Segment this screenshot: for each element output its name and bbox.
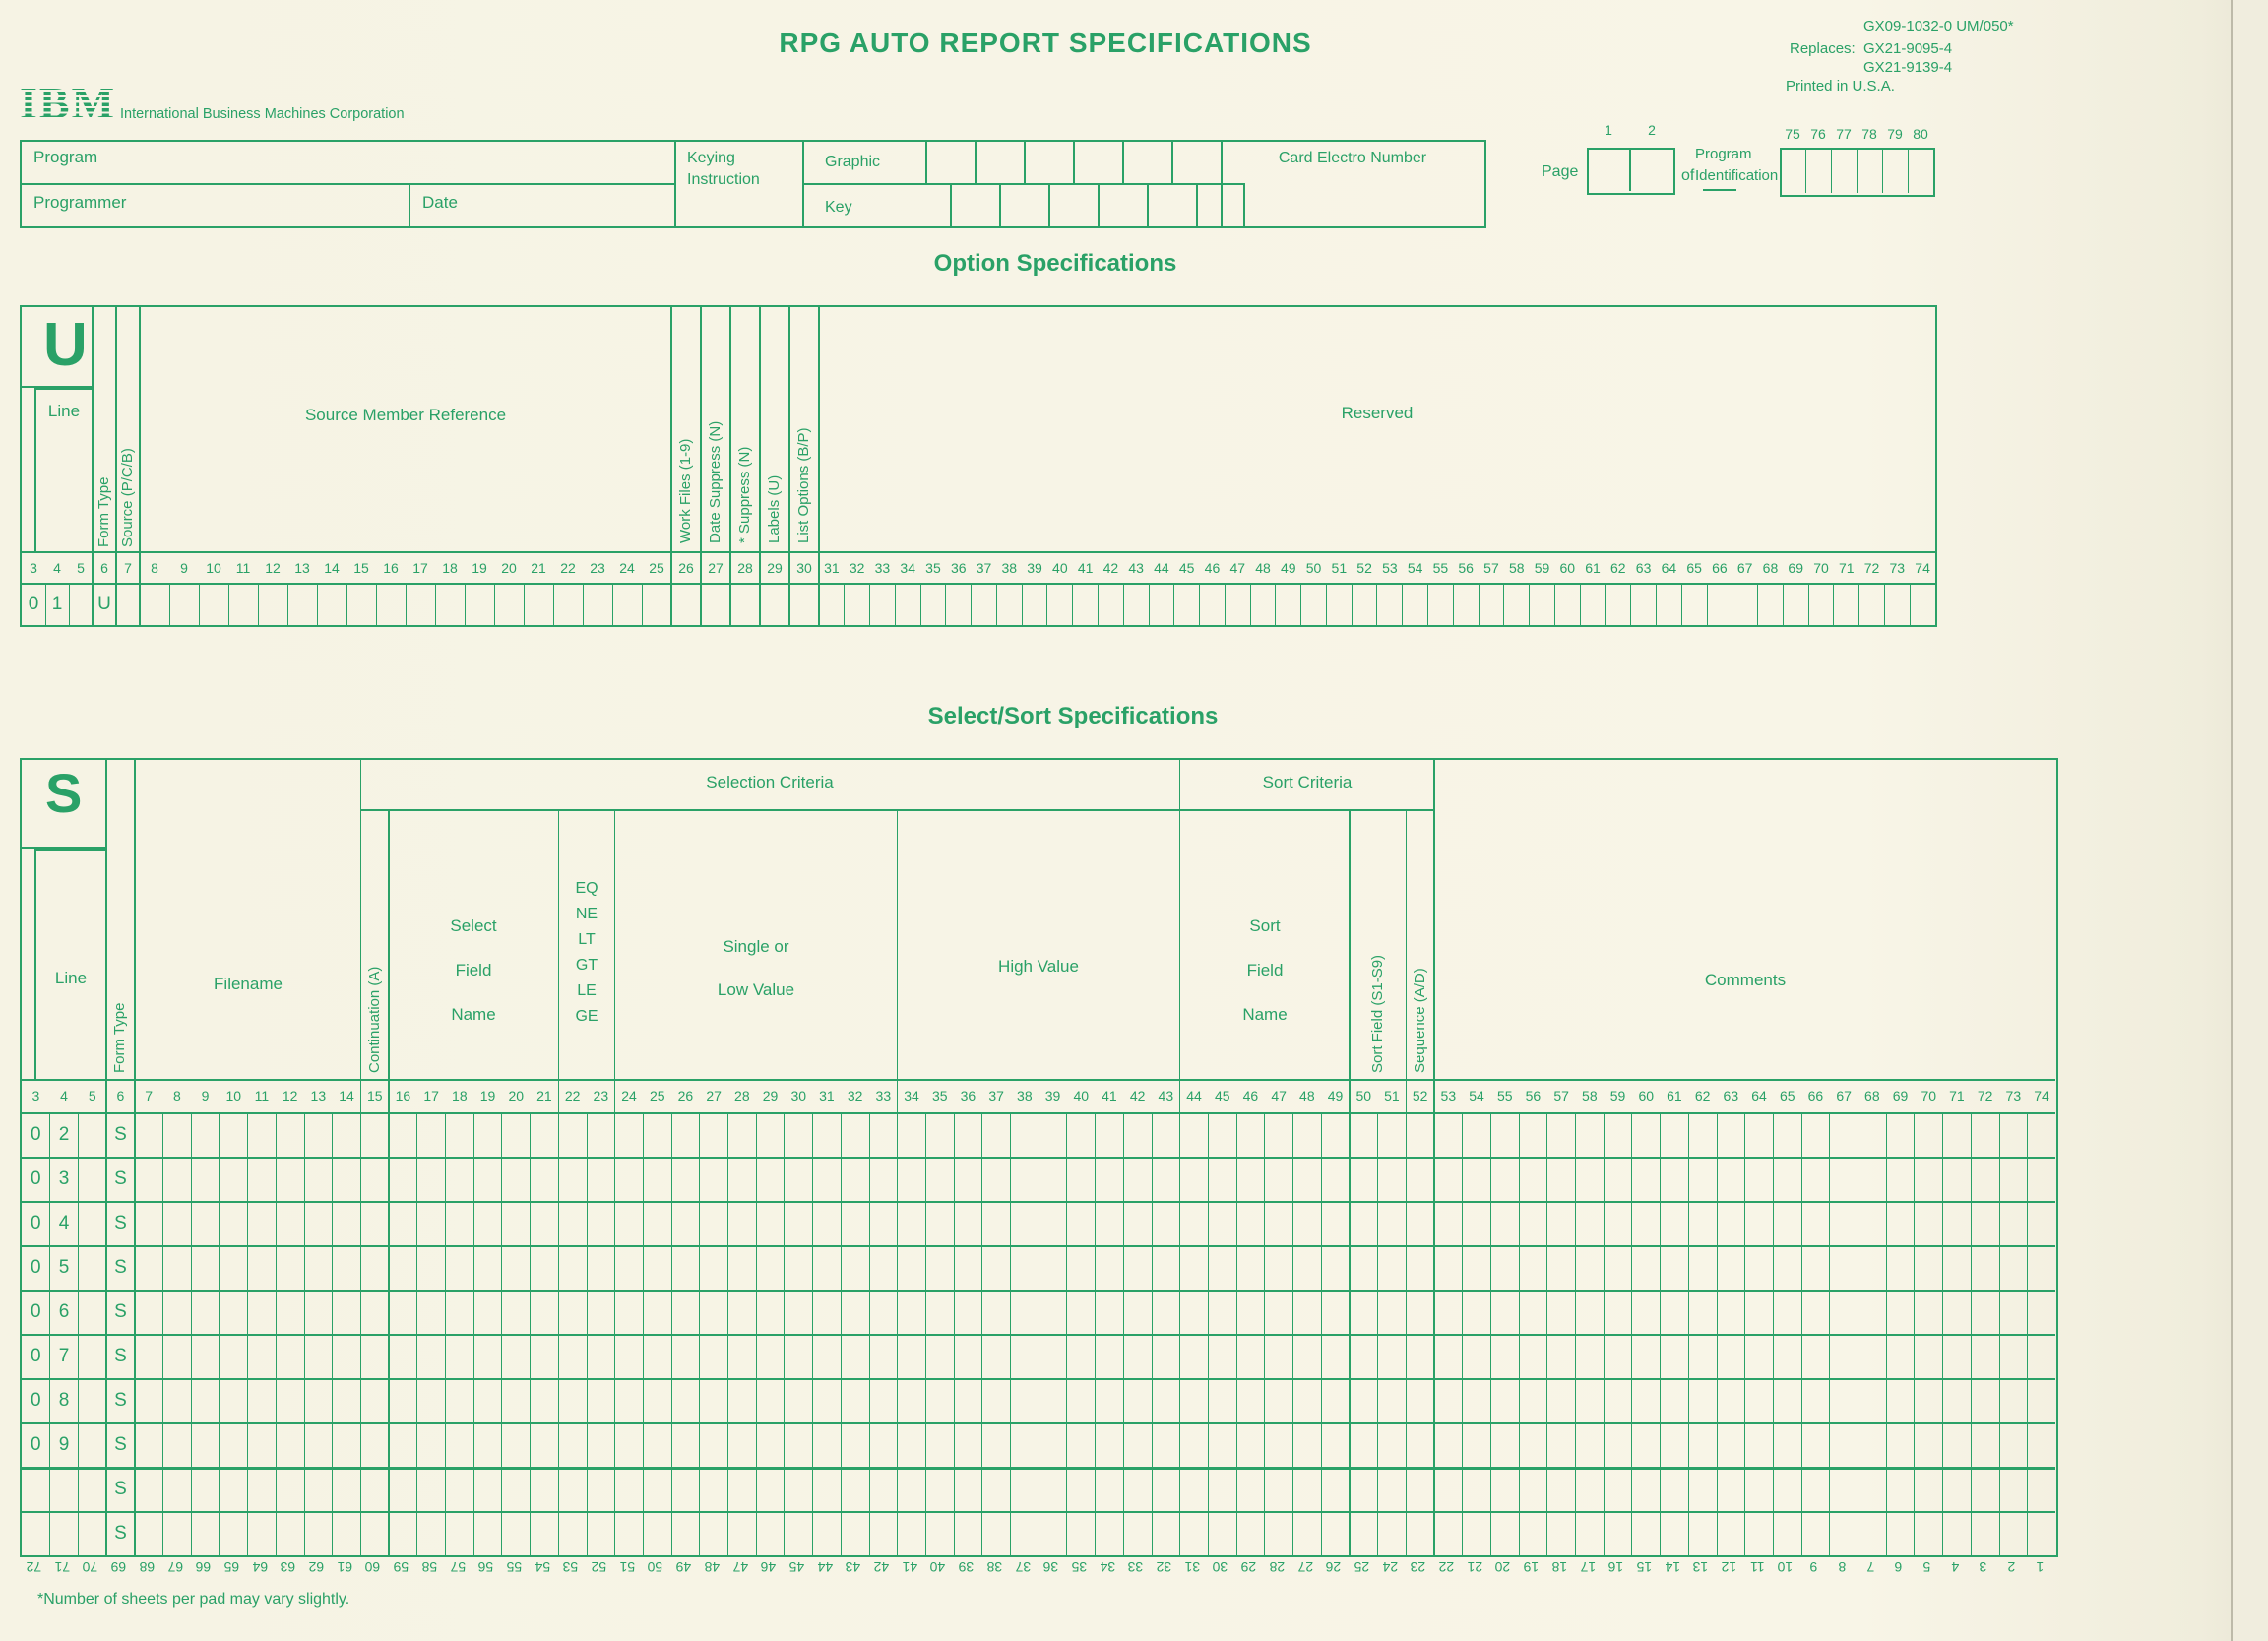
column-number: 27 — [700, 1088, 728, 1104]
column-number: 66 — [1707, 560, 1732, 576]
grid-line — [643, 1201, 644, 1245]
grid-line — [1519, 1378, 1520, 1422]
grid-line — [1744, 1511, 1745, 1555]
grid-line — [276, 1422, 277, 1467]
grid-line — [191, 1511, 192, 1555]
grid-line — [191, 1245, 192, 1290]
grid-line — [1631, 1511, 1632, 1555]
cell-value: S — [106, 1301, 135, 1323]
grid-line — [812, 1112, 813, 1157]
program-id-line-1: Program — [1695, 144, 1778, 165]
grid-line — [614, 1422, 616, 1467]
grid-line — [219, 1422, 220, 1467]
reversed-column-number: 45 — [783, 1559, 811, 1575]
grid-line — [1427, 583, 1428, 625]
grid-line — [1744, 1378, 1745, 1422]
grid-line — [2027, 1511, 2028, 1555]
grid-line — [332, 1157, 333, 1201]
grid-line — [954, 1378, 955, 1422]
column-number: 30 — [789, 560, 819, 576]
grid-line — [530, 1422, 531, 1467]
grid-line — [530, 1201, 531, 1245]
sort-field-line-2: Field — [1242, 948, 1287, 992]
column-number: 51 — [1378, 1088, 1407, 1104]
grid-line — [1039, 1334, 1039, 1378]
grid-line — [1858, 1245, 1858, 1290]
grid-line — [788, 307, 790, 551]
keying-instruction-label: Keying Instruction — [687, 148, 760, 191]
column-number: 52 — [1352, 560, 1377, 576]
reversed-column-number: 4 — [1941, 1559, 1970, 1575]
grid-line — [788, 551, 790, 583]
grid-line — [416, 1112, 417, 1157]
grid-line — [191, 1378, 192, 1422]
reversed-column-number: 8 — [1828, 1559, 1857, 1575]
grid-line — [558, 1201, 560, 1245]
relation-gt: GT — [575, 953, 598, 978]
grid-line — [162, 1334, 163, 1378]
grid-line — [812, 1467, 813, 1511]
grid-line — [981, 1334, 982, 1378]
cell-value: 8 — [50, 1390, 79, 1412]
column-number: 46 — [1200, 560, 1226, 576]
grid-line — [1914, 1334, 1915, 1378]
grid-line — [304, 1201, 305, 1245]
grid-line — [670, 307, 672, 551]
grid-line — [530, 1245, 531, 1290]
grid-line — [587, 1157, 588, 1201]
reversed-column-number: 61 — [331, 1559, 359, 1575]
grid-line — [1829, 1467, 1830, 1511]
grid-line — [670, 583, 672, 625]
grid-line — [1604, 1290, 1605, 1334]
grid-line — [1321, 1112, 1322, 1157]
grid-line — [346, 583, 347, 625]
grid-line — [1292, 1112, 1293, 1157]
grid-line — [1300, 583, 1301, 625]
grid-line — [897, 1157, 899, 1201]
relation-lt: LT — [575, 927, 598, 953]
grid-line — [2027, 1245, 2028, 1290]
grid-line — [162, 1112, 163, 1157]
column-number: 21 — [524, 560, 553, 576]
option-source-vlabel: Source (P/C/B) — [120, 448, 136, 547]
grid-line — [1406, 1157, 1408, 1201]
divider-line — [1221, 140, 1223, 226]
column-number: 35 — [920, 560, 946, 576]
divider-line — [1147, 184, 1149, 226]
grid-line — [1717, 1157, 1718, 1201]
grid-line — [360, 1290, 362, 1334]
grid-line — [1321, 1422, 1322, 1467]
reversed-column-number: 58 — [415, 1559, 444, 1575]
grid-line — [614, 1201, 616, 1245]
grid-line — [49, 1467, 50, 1511]
high-value-label: High Value — [998, 957, 1079, 977]
grid-line — [1604, 1378, 1605, 1422]
grid-line — [1688, 1334, 1689, 1378]
grid-line — [1829, 1511, 1830, 1555]
grid-line — [388, 1422, 390, 1467]
grid-line — [727, 1467, 728, 1511]
printed-in-usa: Printed in U.S.A. — [1786, 78, 1895, 95]
column-number: 43 — [1152, 1088, 1180, 1104]
grid-line — [1688, 1112, 1689, 1157]
grid-line — [1829, 1334, 1830, 1378]
grid-line — [1910, 583, 1911, 625]
grid-line — [1546, 1511, 1547, 1555]
column-number: 3 — [22, 560, 45, 576]
column-number: 59 — [1530, 560, 1555, 576]
grid-line — [1546, 1378, 1547, 1422]
grid-line — [219, 1334, 220, 1378]
grid-line — [416, 1422, 417, 1467]
grid-line — [954, 1201, 955, 1245]
grid-line — [1010, 1290, 1011, 1334]
grid-line — [1942, 1245, 1943, 1290]
grid-line — [981, 1201, 982, 1245]
grid-line — [1744, 1290, 1745, 1334]
grid-line — [756, 1245, 757, 1290]
grid-line — [841, 1467, 842, 1511]
grid-line — [388, 1334, 390, 1378]
grid-line — [1179, 760, 1181, 1079]
grid-line — [1123, 1467, 1124, 1511]
grid-line — [1406, 1290, 1408, 1334]
grid-line — [1744, 1157, 1745, 1201]
grid-line — [1914, 1245, 1915, 1290]
grid-line — [1717, 1334, 1718, 1378]
grid-line — [643, 1467, 644, 1511]
grid-line — [1039, 1422, 1039, 1467]
grid-line — [1095, 1334, 1096, 1378]
grid-line — [78, 1511, 79, 1555]
grid-line — [1010, 1422, 1011, 1467]
reversed-column-number: 33 — [1121, 1559, 1150, 1575]
grid-line — [784, 1511, 785, 1555]
column-number: 15 — [346, 560, 376, 576]
grid-line — [1095, 1245, 1096, 1290]
column-number: 73 — [1884, 560, 1910, 576]
grid-line — [784, 1112, 785, 1157]
grid-line — [416, 1511, 417, 1555]
column-number: 56 — [1519, 1088, 1547, 1104]
grid-line — [1631, 1290, 1632, 1334]
grid-line — [1264, 1201, 1265, 1245]
grid-line — [1688, 1511, 1689, 1555]
grid-line — [1066, 1511, 1067, 1555]
cell-value: U — [93, 594, 116, 615]
grid-line — [1688, 1378, 1689, 1422]
grid-line — [1406, 1079, 1408, 1112]
reversed-column-number: 22 — [1432, 1559, 1461, 1575]
grid-line — [1208, 1201, 1209, 1245]
grid-line — [1462, 1201, 1463, 1245]
grid-line — [332, 1467, 333, 1511]
grid-line — [1717, 1290, 1718, 1334]
reversed-column-number: 3 — [1969, 1559, 1997, 1575]
grid-line — [895, 583, 896, 625]
grid-line — [841, 1157, 842, 1201]
grid-line — [1660, 1290, 1661, 1334]
grid-line — [784, 1245, 785, 1290]
grid-line — [869, 1422, 870, 1467]
column-number: 49 — [1276, 560, 1301, 576]
column-number: 3 — [22, 1088, 50, 1104]
grid-line — [360, 1112, 362, 1157]
column-number: 34 — [895, 560, 920, 576]
column-number: 17 — [417, 1088, 446, 1104]
grid-line — [1236, 1157, 1237, 1201]
grid-line — [1833, 583, 1834, 625]
column-number: 44 — [1149, 560, 1174, 576]
grid-line — [445, 1467, 446, 1511]
grid-line — [1149, 583, 1150, 625]
divider-line — [1073, 140, 1075, 184]
grid-line — [1605, 583, 1606, 625]
grid-line — [1773, 1290, 1774, 1334]
grid-line — [1376, 583, 1377, 625]
grid-line — [1264, 1422, 1265, 1467]
grid-line — [1604, 1245, 1605, 1290]
grid-line — [1971, 1467, 1972, 1511]
column-number: 41 — [1096, 1088, 1124, 1104]
grid-line — [1010, 1378, 1011, 1422]
grid-line — [587, 1334, 588, 1378]
cell-value: S — [106, 1523, 135, 1545]
grid-line — [897, 1511, 899, 1555]
grid-line — [612, 583, 613, 625]
column-number: 54 — [1403, 560, 1428, 576]
reversed-column-number: 37 — [1009, 1559, 1038, 1575]
grid-line — [1152, 1467, 1153, 1511]
grid-line — [1010, 1511, 1011, 1555]
column-number: 57 — [1547, 1088, 1576, 1104]
grid-line — [530, 1157, 531, 1201]
grid-line — [1208, 1290, 1209, 1334]
grid-line — [360, 1467, 362, 1511]
grid-line — [1886, 1290, 1887, 1334]
grid-line — [2027, 1112, 2028, 1157]
grid-line — [1208, 1245, 1209, 1290]
grid-line — [841, 1422, 842, 1467]
grid-line — [784, 1467, 785, 1511]
grid-line — [1604, 1467, 1605, 1511]
grid-line — [1292, 1378, 1293, 1422]
grid-line — [501, 1290, 502, 1334]
grid-line — [925, 1245, 926, 1290]
grid-line — [727, 1511, 728, 1555]
grid-line — [1999, 1201, 2000, 1245]
grid-line — [22, 551, 1935, 553]
grid-line — [1321, 1201, 1322, 1245]
grid-line — [1942, 1112, 1943, 1157]
column-number: 47 — [1265, 1088, 1293, 1104]
column-number: 12 — [258, 560, 287, 576]
column-number: 9 — [169, 560, 199, 576]
grid-line — [34, 388, 93, 390]
relation-ge: GE — [575, 1004, 598, 1030]
grid-line — [1688, 1157, 1689, 1201]
cell-value: 2 — [50, 1124, 79, 1146]
option-form-type-letter: U — [43, 315, 88, 376]
column-number: 30 — [785, 1088, 813, 1104]
grid-line — [219, 1511, 220, 1555]
grid-line — [1462, 1290, 1463, 1334]
grid-line — [1688, 1290, 1689, 1334]
grid-line — [1039, 1112, 1039, 1157]
column-number: 16 — [389, 1088, 417, 1104]
grid-line — [1829, 1112, 1830, 1157]
grid-line — [1858, 1467, 1858, 1511]
grid-line — [1942, 1290, 1943, 1334]
grid-line — [1179, 1245, 1181, 1290]
grid-line — [1519, 1201, 1520, 1245]
grid-line — [1179, 1157, 1181, 1201]
reversed-column-number: 13 — [1686, 1559, 1715, 1575]
reversed-column-number: 15 — [1630, 1559, 1659, 1575]
select-field-name-label: Select Field Name — [450, 904, 496, 1037]
grid-line — [501, 1157, 502, 1201]
grid-line — [1264, 1378, 1265, 1422]
column-number: 35 — [925, 1088, 954, 1104]
grid-line — [818, 307, 820, 551]
grid-line — [1631, 1378, 1632, 1422]
grid-line — [1490, 1467, 1491, 1511]
grid-line — [1630, 583, 1631, 625]
cell-value: S — [106, 1124, 135, 1146]
grid-line — [1519, 1422, 1520, 1467]
column-number: 53 — [1434, 1088, 1463, 1104]
grid-line — [727, 1201, 728, 1245]
grid-line — [1462, 1334, 1463, 1378]
grid-line — [332, 1378, 333, 1422]
column-number: 45 — [1208, 1088, 1236, 1104]
grid-line — [1264, 1245, 1265, 1290]
reversed-column-number: 50 — [641, 1559, 669, 1575]
grid-line — [1829, 1201, 1830, 1245]
grid-line — [247, 1422, 248, 1467]
grid-line — [1546, 1157, 1547, 1201]
grid-line — [1264, 1112, 1265, 1157]
grid-line — [1208, 1334, 1209, 1378]
grid-line — [501, 1422, 502, 1467]
grid-line — [784, 1201, 785, 1245]
grid-line — [1490, 1334, 1491, 1378]
grid-line — [1039, 1467, 1039, 1511]
cell-value: 4 — [50, 1213, 79, 1234]
grid-line — [1321, 1511, 1322, 1555]
reversed-column-number: 56 — [472, 1559, 500, 1575]
column-number: 47 — [1225, 560, 1250, 576]
grid-line — [1462, 1245, 1463, 1290]
grid-line — [1321, 1157, 1322, 1201]
cell-value: 9 — [50, 1434, 79, 1456]
column-number: 6 — [106, 1088, 135, 1104]
grid-line — [191, 1157, 192, 1201]
column-number: 25 — [642, 560, 671, 576]
grid-line — [920, 583, 921, 625]
grid-line — [1971, 1157, 1972, 1201]
grid-line — [1039, 1245, 1039, 1290]
grid-line — [1942, 1334, 1943, 1378]
grid-line — [784, 1334, 785, 1378]
grid-line — [1914, 1290, 1915, 1334]
column-number: 46 — [1236, 1088, 1265, 1104]
grid-line — [1152, 1334, 1153, 1378]
cell-value: 0 — [22, 594, 45, 615]
grid-line — [1829, 1378, 1830, 1422]
relation-ne: NE — [575, 902, 598, 927]
grid-line — [1717, 1511, 1718, 1555]
grid-line — [756, 1334, 757, 1378]
grid-line — [643, 1290, 644, 1334]
column-number: 23 — [583, 560, 612, 576]
grid-line — [869, 1112, 870, 1157]
column-number: 6 — [93, 560, 116, 576]
divider-line — [950, 184, 952, 226]
grid-line — [388, 1467, 390, 1511]
grid-line — [1732, 583, 1732, 625]
grid-line — [897, 1422, 899, 1467]
grid-line — [756, 1422, 757, 1467]
grid-line — [1717, 1467, 1718, 1511]
grid-line — [925, 1112, 926, 1157]
grid-line — [1349, 1201, 1351, 1245]
column-number: 12 — [276, 1088, 304, 1104]
grid-line — [818, 551, 820, 583]
grid-line — [727, 1422, 728, 1467]
column-number: 28 — [728, 1088, 757, 1104]
grid-line — [1066, 1201, 1067, 1245]
grid-line — [1858, 1157, 1858, 1201]
grid-line — [388, 1112, 390, 1157]
grid-line — [1095, 1467, 1096, 1511]
grid-line — [587, 1511, 588, 1555]
grid-line — [756, 1467, 757, 1511]
divider-line — [409, 183, 410, 226]
grid-line — [304, 1112, 305, 1157]
grid-line — [1349, 1157, 1351, 1201]
grid-line — [1066, 1290, 1067, 1334]
reversed-column-number: 1 — [2026, 1559, 2054, 1575]
reversed-column-number: 26 — [1319, 1559, 1348, 1575]
grid-line — [1208, 1467, 1209, 1511]
grid-line — [388, 1511, 390, 1555]
column-number: 71 — [1834, 560, 1859, 576]
grid-line — [1999, 1511, 2000, 1555]
grid-line — [759, 583, 761, 625]
grid-line — [1914, 1201, 1915, 1245]
single-or-low-value-label: Single or Low Value — [718, 925, 794, 1012]
cell-value: S — [106, 1213, 135, 1234]
reversed-column-number: 18 — [1545, 1559, 1574, 1575]
column-number: 67 — [1830, 1088, 1858, 1104]
grid-line — [699, 1378, 700, 1422]
grid-line — [1152, 1422, 1153, 1467]
grid-line — [954, 1511, 955, 1555]
grid-line — [1773, 1245, 1774, 1290]
grid-line — [1208, 1422, 1209, 1467]
column-number: 55 — [1490, 1088, 1519, 1104]
grid-line — [614, 1157, 616, 1201]
column-number: 7 — [135, 1088, 163, 1104]
grid-line — [1656, 583, 1657, 625]
grid-line — [954, 1290, 955, 1334]
grid-line — [1292, 1334, 1293, 1378]
grid-line — [1886, 1157, 1887, 1201]
grid-line — [1858, 1378, 1858, 1422]
